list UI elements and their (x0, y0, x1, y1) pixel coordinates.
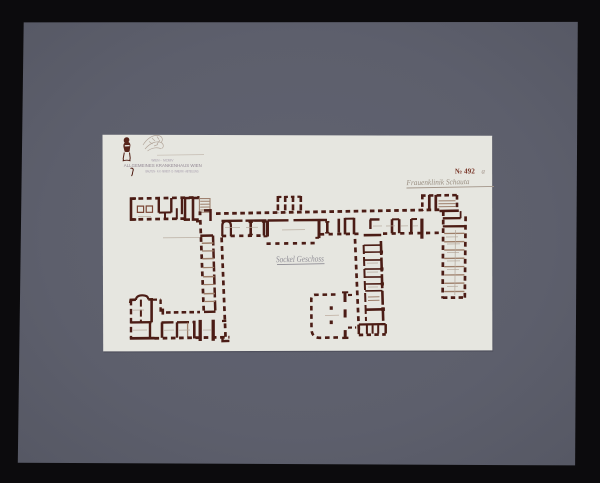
svg-text:№ 492: № 492 (454, 167, 475, 175)
svg-text:a: a (482, 168, 486, 175)
svg-text:Sockel Geschoss: Sockel Geschoss (276, 253, 325, 264)
svg-text:WIEN ·· MCMIV: WIEN ·· MCMIV (151, 158, 174, 162)
svg-text:ALLGEMEINES KRANKENHAUS WIEN: ALLGEMEINES KRANKENHAUS WIEN (124, 163, 202, 168)
svg-text:Frauenklinik Schauta: Frauenklinik Schauta (405, 177, 469, 187)
svg-text:BAUTEN · K·K· MINIST· D· INNER: BAUTEN · K·K· MINIST· D· INNERN · ABTEIL… (146, 169, 199, 173)
